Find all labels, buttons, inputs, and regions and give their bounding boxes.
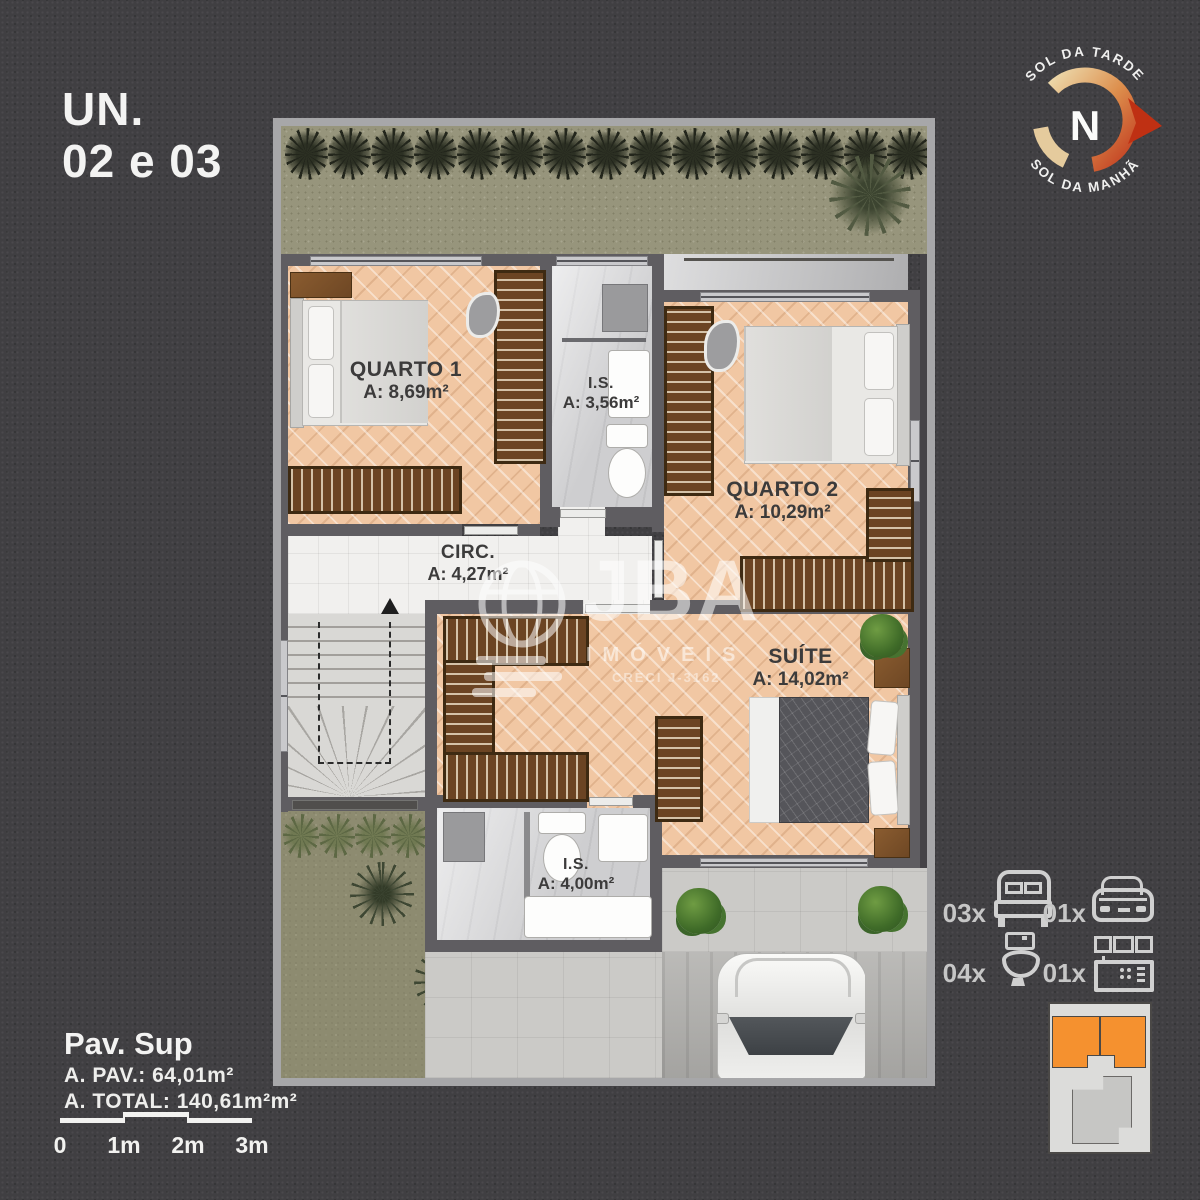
- banheiro1-label: I.S. A: 3,56m²: [545, 375, 657, 413]
- door: [654, 540, 663, 598]
- wall: [278, 524, 462, 536]
- shrub-icon: [285, 128, 328, 180]
- shrub-icon: [672, 128, 715, 180]
- car: [717, 953, 865, 1078]
- floor-title: Pav. Sup: [64, 1026, 193, 1062]
- kitchen-count: 01x: [1042, 958, 1086, 989]
- stair-path: [318, 622, 320, 762]
- pav-area-text: A. PAV.: 64,01m²: [64, 1064, 234, 1088]
- kitchen-icon: [1094, 936, 1154, 992]
- wall: [605, 507, 664, 527]
- shrub-icon: [543, 128, 586, 180]
- bush-icon: [676, 888, 722, 934]
- sink: [598, 814, 648, 862]
- window: [279, 640, 288, 752]
- locator-highlight-units: [1052, 1016, 1146, 1068]
- wall: [518, 524, 540, 536]
- quarto2-area: A: 10,29m²: [690, 502, 875, 524]
- shrub-icon: [586, 128, 629, 180]
- walkway-paving: [425, 952, 662, 1078]
- car-count: 01x: [1042, 898, 1086, 929]
- closet-top: [443, 616, 589, 666]
- shrub-icon: [758, 128, 801, 180]
- quarto2-name: QUARTO 2: [690, 478, 875, 502]
- toilet-tank: [606, 424, 648, 448]
- wall: [425, 940, 662, 952]
- scale-tick-1m: 1m: [104, 1132, 144, 1159]
- banheiro2-name: I.S.: [502, 856, 650, 874]
- quarto1-name: QUARTO 1: [330, 358, 482, 382]
- shrub-icon: [457, 128, 500, 180]
- sliding-closet: [740, 556, 914, 612]
- scale-bar: 0 1m 2m 3m: [60, 1110, 290, 1162]
- garden-bottom-left: [281, 810, 425, 1078]
- quarto2-label: QUARTO 2 A: 10,29m²: [690, 478, 875, 524]
- shrub-icon: [629, 128, 672, 180]
- door: [589, 797, 633, 806]
- closet-bottom: [443, 752, 589, 802]
- banheiro1-name: I.S.: [545, 375, 657, 393]
- unit-label-line1: UN.: [62, 84, 222, 136]
- window: [556, 256, 648, 266]
- compass: SOL DA TARDE SOL DA MANHÃ N: [1002, 40, 1168, 206]
- circulacao-name: CIRC.: [390, 542, 546, 564]
- toilet-icon: [1002, 932, 1040, 990]
- wardrobe: [655, 716, 703, 822]
- window: [292, 800, 418, 810]
- unit-label-line2: 02 e 03: [62, 136, 222, 188]
- car-windshield: [729, 1017, 853, 1055]
- wardrobe: [494, 270, 546, 464]
- wall: [425, 600, 437, 952]
- unit-locator-map: [1048, 1002, 1152, 1154]
- garden-top: [281, 126, 927, 254]
- compass-bottom-text: SOL DA MANHÃ: [1027, 156, 1142, 195]
- locator-notch: [1087, 1055, 1115, 1068]
- suite-name: SUÍTE: [698, 645, 903, 669]
- up-arrow-icon: [381, 598, 399, 614]
- window: [310, 256, 482, 266]
- bed: [740, 324, 908, 464]
- sill-window-line: [684, 258, 894, 261]
- scale-joint: [123, 1112, 125, 1123]
- nightstand: [874, 828, 910, 858]
- leaf-row: [283, 814, 427, 858]
- scale-segment: [60, 1118, 124, 1123]
- suite-label: SUÍTE A: 14,02m²: [698, 645, 903, 691]
- door: [464, 526, 518, 535]
- shrub-icon: [414, 128, 457, 180]
- shrub-row: [285, 126, 930, 180]
- window: [700, 858, 868, 867]
- toilet-bowl: [608, 448, 646, 498]
- car-mirror: [855, 1013, 865, 1024]
- wall: [540, 507, 560, 527]
- car-mirror: [717, 1013, 729, 1024]
- car-roof: [735, 958, 851, 997]
- scale-joint: [187, 1112, 189, 1123]
- quarto1-label: QUARTO 1 A: 8,69m²: [330, 358, 482, 404]
- banheiro2-label: I.S. A: 4,00m²: [502, 856, 650, 894]
- door: [560, 509, 606, 518]
- car-icon: [1092, 876, 1154, 928]
- bed: [747, 695, 908, 823]
- agave-plant-icon: [829, 154, 911, 236]
- wall: [437, 600, 583, 614]
- scale-tick-2m: 2m: [168, 1132, 208, 1159]
- shelf: [290, 272, 352, 298]
- unit-label: UN. 02 e 03: [62, 84, 222, 187]
- compass-north-letter: N: [1002, 102, 1168, 150]
- stair-path: [318, 762, 391, 764]
- banheiro2-area: A: 4,00m²: [502, 874, 650, 894]
- suite-area: A: 14,02m²: [698, 669, 903, 691]
- floor-plan-page: UN. 02 e 03 SOL DA TARDE SOL DA MANHÃ N: [0, 0, 1200, 1200]
- leaf-shrub-icon: [391, 814, 427, 858]
- side-margin: [920, 254, 927, 868]
- shrub-icon: [500, 128, 543, 180]
- staircase-winder: [288, 706, 425, 797]
- circulacao-label: CIRC. A: 4,27m²: [390, 542, 546, 585]
- leaf-shrub-icon: [355, 814, 391, 858]
- closet-side: [443, 660, 495, 758]
- banheiro1-area: A: 3,56m²: [545, 393, 657, 413]
- sliding-closet: [288, 466, 462, 514]
- window: [700, 292, 870, 302]
- washer: [443, 812, 485, 862]
- shrub-icon: [371, 128, 414, 180]
- leaf-shrub-icon: [319, 814, 355, 858]
- locator-lower-block: [1072, 1076, 1132, 1144]
- door: [585, 604, 651, 613]
- scale-segment: [124, 1112, 188, 1117]
- quarto1-area: A: 8,69m²: [330, 382, 482, 404]
- scale-tick-0: 0: [48, 1132, 72, 1159]
- bed-count: 03x: [938, 898, 986, 929]
- svg-text:SOL DA MANHÃ: SOL DA MANHÃ: [1027, 156, 1142, 195]
- bush-icon: [858, 886, 904, 932]
- shower-glass: [562, 338, 646, 342]
- toilet-count: 04x: [938, 958, 986, 989]
- scale-tick-3m: 3m: [232, 1132, 272, 1159]
- shower: [602, 284, 648, 332]
- toilet-tank: [538, 812, 586, 834]
- scale-segment: [188, 1118, 252, 1123]
- palm-plant-icon: [350, 862, 414, 926]
- leaf-shrub-icon: [283, 814, 319, 858]
- shrub-icon: [715, 128, 758, 180]
- stair-path: [389, 622, 391, 764]
- shrub-icon: [328, 128, 371, 180]
- staircase: [288, 614, 425, 706]
- circulacao-area: A: 4,27m²: [390, 564, 546, 585]
- vanity: [524, 896, 652, 938]
